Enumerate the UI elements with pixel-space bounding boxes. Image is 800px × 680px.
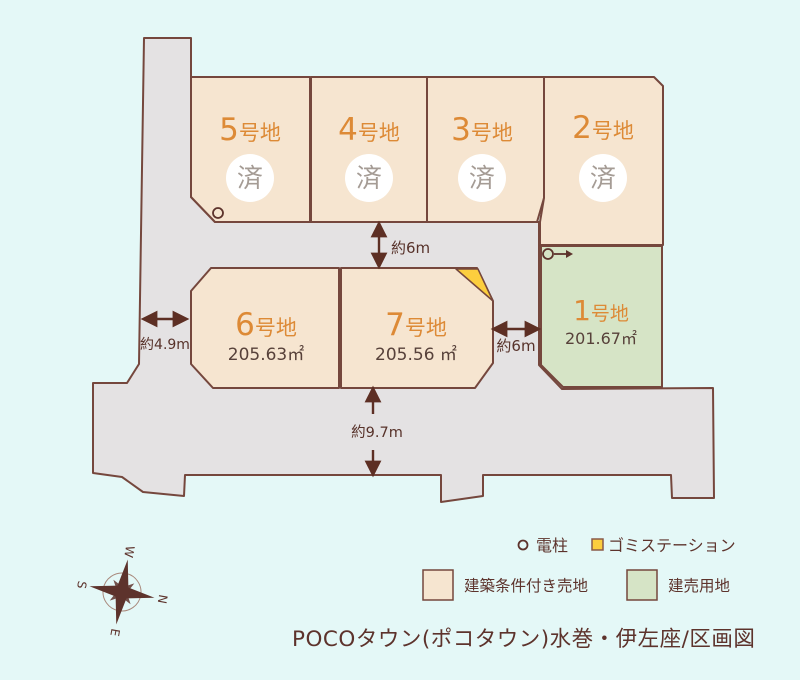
legend-garbage-label: ゴミステーション <box>608 536 736 555</box>
plot-4-status: 済 <box>356 164 382 194</box>
plot-1-area: 201.67㎡ <box>565 329 637 348</box>
plot-7-area: 205.56 ㎡ <box>375 345 457 365</box>
dimension-road-top-label: 約6m <box>391 239 430 257</box>
plot-3-status: 済 <box>469 164 495 194</box>
compass-west-label: W <box>121 545 137 559</box>
compass-east-label: E <box>107 627 122 637</box>
compass-icon: N E S W <box>67 537 177 644</box>
plot-5-status: 済 <box>237 164 263 194</box>
dimension-road-right-label: 約6m <box>496 337 535 355</box>
compass-south-label: S <box>74 580 89 590</box>
legend-sale-swatch <box>627 570 657 600</box>
legend-pole-label: 電柱 <box>536 536 568 555</box>
legend-conditional-swatch <box>423 570 453 600</box>
legend-conditional-label: 建築条件付き売地 <box>464 577 588 595</box>
legend-pole-icon <box>519 541 528 550</box>
plot-6-area: 205.63㎡ <box>228 345 304 365</box>
legend-sale-label: 建売用地 <box>668 577 730 595</box>
dimension-road-left-label: 約4.9m <box>140 337 190 353</box>
compass-north-label: N <box>155 593 170 604</box>
site-plan-page: 5号地 済 4号地 済 3号地 済 2号地 済 6号地 205.63㎡ 7号地 … <box>0 0 800 680</box>
site-plan-map: 5号地 済 4号地 済 3号地 済 2号地 済 6号地 205.63㎡ 7号地 … <box>0 0 800 680</box>
map-title: POCOタウン(ポコタウン)水巻・伊左座/区画図 <box>292 627 755 652</box>
dimension-road-bottom-label: 約9.7m <box>351 424 403 441</box>
plot-2-status: 済 <box>590 164 616 194</box>
legend-garbage-icon <box>592 539 603 550</box>
legend: 電柱 ゴミステーション 建築条件付き売地 建売用地 <box>423 536 736 600</box>
